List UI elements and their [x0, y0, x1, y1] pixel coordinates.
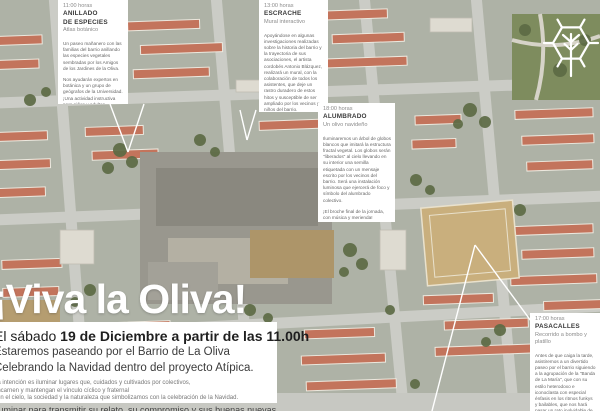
event-name: ESCRACHE	[264, 10, 324, 18]
event-paragraph: Nos ayudarán expertos en botánica y un g…	[63, 77, 124, 104]
event-time: 11:00 horas	[63, 3, 124, 10]
event-time: 13:00 horas	[264, 3, 324, 10]
closing-line: Iluminar para transmitir su relato, su c…	[0, 405, 271, 411]
date-prefix: El sábado	[0, 328, 60, 344]
event-paragraph: Antes de que caiga la tarde, asistiremos…	[535, 353, 596, 411]
event-time: 17:00 horas	[535, 316, 596, 323]
event-subtitle: Atlas botánico	[63, 27, 124, 34]
event-box-alumbrado: 18:00 horas ALUMBRADO Un olivo navideño …	[318, 103, 395, 222]
fine-print: La intención es iluminar lugares que, cu…	[0, 380, 271, 402]
date-bold: 19 de Diciembre a partir de las 11.00h	[60, 328, 309, 344]
poster-canvas: 11:00 horas ANILLADO DE ESPECIES Atlas b…	[0, 0, 600, 411]
event-paragraph: Un paseo mañanero con las familias del b…	[63, 41, 124, 72]
date-line: El sábado 19 de Diciembre a partir de la…	[0, 328, 271, 344]
headline-line-3: Celebrando la Navidad dentro del proyect…	[0, 362, 271, 376]
event-subtitle: Recorrido a bombo y platillo	[535, 332, 596, 346]
headline-panel: El sábado 19 de Diciembre a partir de la…	[0, 322, 277, 403]
event-subtitle: Mural interactivo	[264, 19, 324, 26]
event-paragraph: Apoyándose en algunas investigaciones re…	[264, 33, 324, 112]
event-box-anillado: 11:00 horas ANILLADO DE ESPECIES Atlas b…	[58, 0, 128, 104]
hexagon-tree-logo-icon	[540, 12, 600, 78]
event-paragraph: ¡El broche final de la jornada, con músi…	[323, 209, 391, 221]
event-box-escrache: 13:00 horas ESCRACHE Mural interactivo A…	[259, 0, 328, 112]
event-time: 18:00 horas	[323, 106, 391, 113]
event-name: ALUMBRADO	[323, 113, 391, 121]
fine-print-line: encarnen y mantengan el vínculo cíclico …	[0, 388, 271, 395]
event-name: ANILLADO DE ESPECIES	[63, 10, 124, 27]
fine-print-line: La intención es iluminar lugares que, cu…	[0, 380, 271, 387]
headline-line-2: Estaremos paseando por el Barrio de La O…	[0, 346, 271, 360]
event-subtitle: Un olivo navideño	[323, 122, 391, 129]
event-paragraph: Iluminaremos un árbol de globos blancos …	[323, 136, 391, 204]
poster-title: ¡Viva la Oliva!	[0, 276, 246, 323]
fine-print-line: con el cielo, la sociedad y la naturalez…	[0, 395, 271, 402]
event-box-pasacalles: 17:00 horas PASACALLES Recorrido a bombo…	[530, 313, 600, 411]
event-name: PASACALLES	[535, 323, 596, 331]
